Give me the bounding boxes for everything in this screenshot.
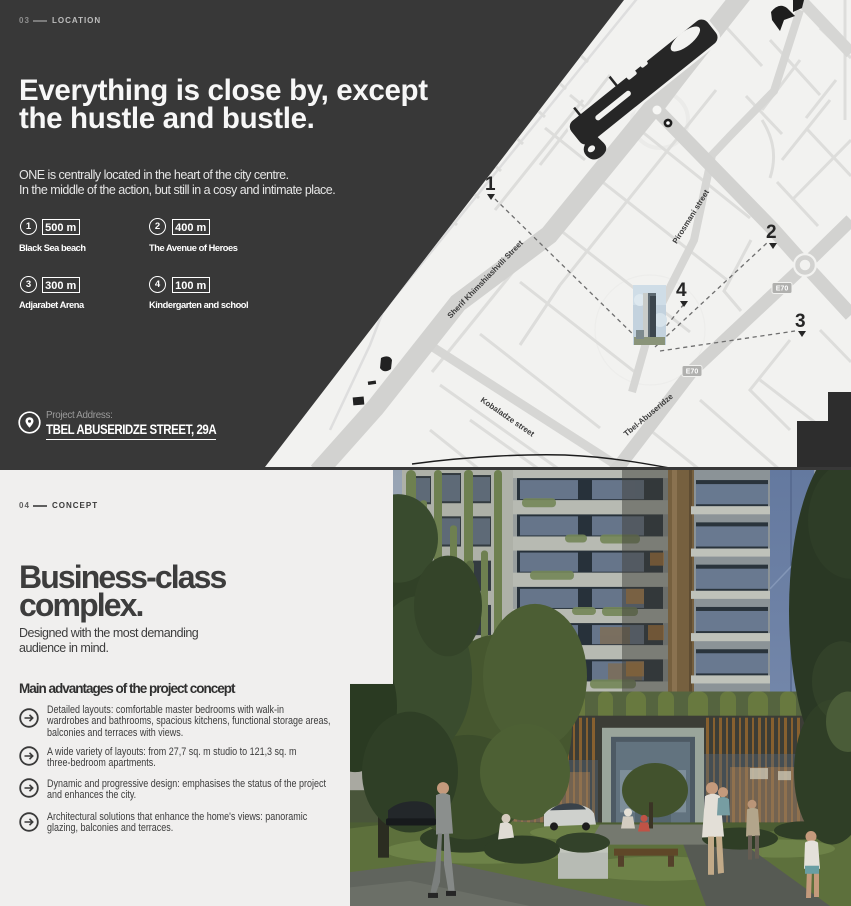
- svg-text:E70: E70: [686, 369, 699, 376]
- svg-text:4: 4: [676, 280, 687, 301]
- svg-text:3: 3: [795, 311, 806, 332]
- svg-text:E70: E70: [776, 286, 789, 293]
- svg-text:1: 1: [485, 174, 496, 195]
- svg-text:2: 2: [766, 222, 777, 243]
